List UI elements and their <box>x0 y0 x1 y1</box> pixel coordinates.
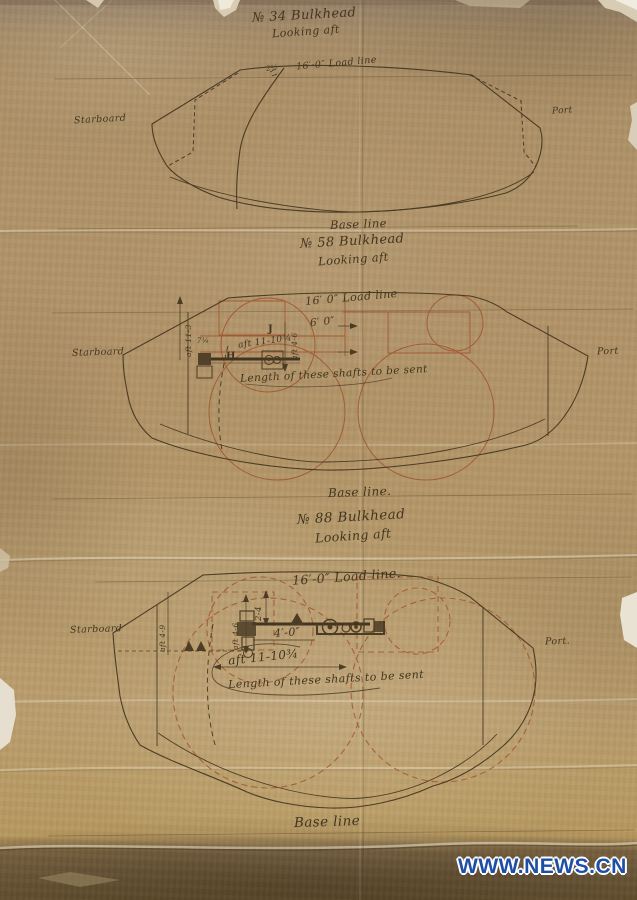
vertical-dimension-mid-88: aft 4-6 <box>231 622 240 650</box>
news-watermark: WWW.NEWS.CN <box>458 855 627 879</box>
vertical-dimension-left-88: aft 4-9 <box>158 624 167 652</box>
bulkhead-58-red-construction <box>200 295 494 480</box>
dimension-4-0-label-88: 4′-0″ <box>274 625 301 640</box>
starboard-label-88: Starboard <box>70 623 123 636</box>
blueprint-linework <box>0 0 637 900</box>
vertical-dimension-2-4-88: 2-4 <box>254 606 264 621</box>
label-j-58: J <box>268 324 273 335</box>
bulkhead-88-drawing <box>113 572 536 808</box>
port-label-34: Port <box>552 105 573 116</box>
base-line-label-88: Base line <box>294 813 361 831</box>
photo-of-ship-blueprint: № 34 Bulkhead Looking aft 2½ 16′·0″ Load… <box>0 0 637 900</box>
port-label-88: Port. <box>545 636 570 648</box>
bulkhead-34-tick-dimension: 2½ <box>266 63 279 73</box>
ruled-guide-lines <box>48 75 634 836</box>
dimension-small-label-58: 7¼ <box>197 337 209 345</box>
vertical-dimension-right-58: aft 4-6 <box>290 332 299 360</box>
base-line-label-58: Base line. <box>328 484 392 500</box>
vertical-dimension-left-58: aft 11-3 <box>184 324 193 357</box>
base-line-label-34: Base line <box>330 216 387 232</box>
bulkhead-34-drawing <box>152 65 542 212</box>
label-h-58: H <box>226 351 236 362</box>
starboard-label-58: Starboard <box>72 346 125 359</box>
port-label-58: Port <box>597 346 619 358</box>
